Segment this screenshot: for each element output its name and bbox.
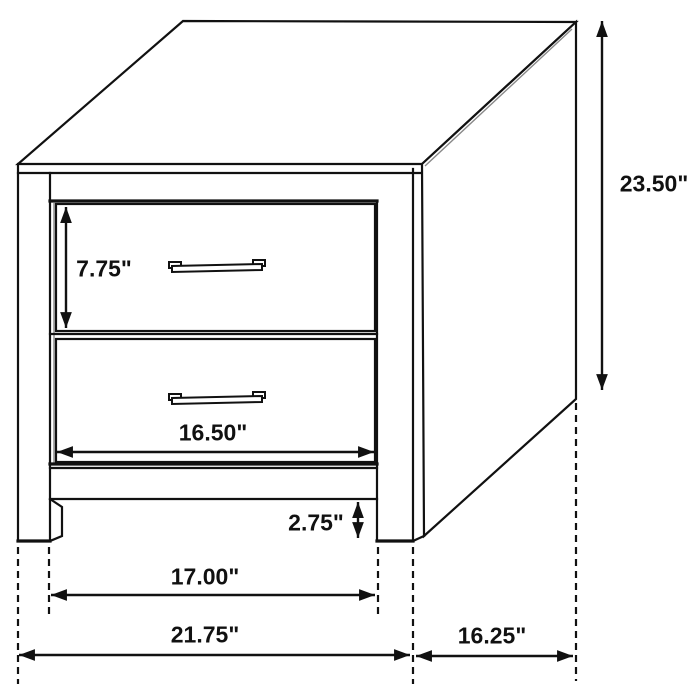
nightstand-line-drawing xyxy=(0,0,700,700)
dimension-label-side-depth: 16.25" xyxy=(458,623,526,650)
dimension-label-drawer-height: 7.75" xyxy=(76,256,132,283)
right-leg-side-bottom xyxy=(413,536,424,541)
dimension-label-drawer-width: 16.50" xyxy=(179,420,247,447)
dimension-label-overall-width: 21.75" xyxy=(171,622,239,649)
dimension-label-overall-height: 23.50" xyxy=(620,171,688,198)
dimension-label-base-clearance: 2.75" xyxy=(288,510,344,537)
dimension-diagram: 23.50" 7.75" 16.50" 2.75" 17.00" 21.75" … xyxy=(0,0,700,700)
left-leg-inner-face xyxy=(50,499,62,541)
dimension-label-inner-leg-span: 17.00" xyxy=(171,564,239,591)
